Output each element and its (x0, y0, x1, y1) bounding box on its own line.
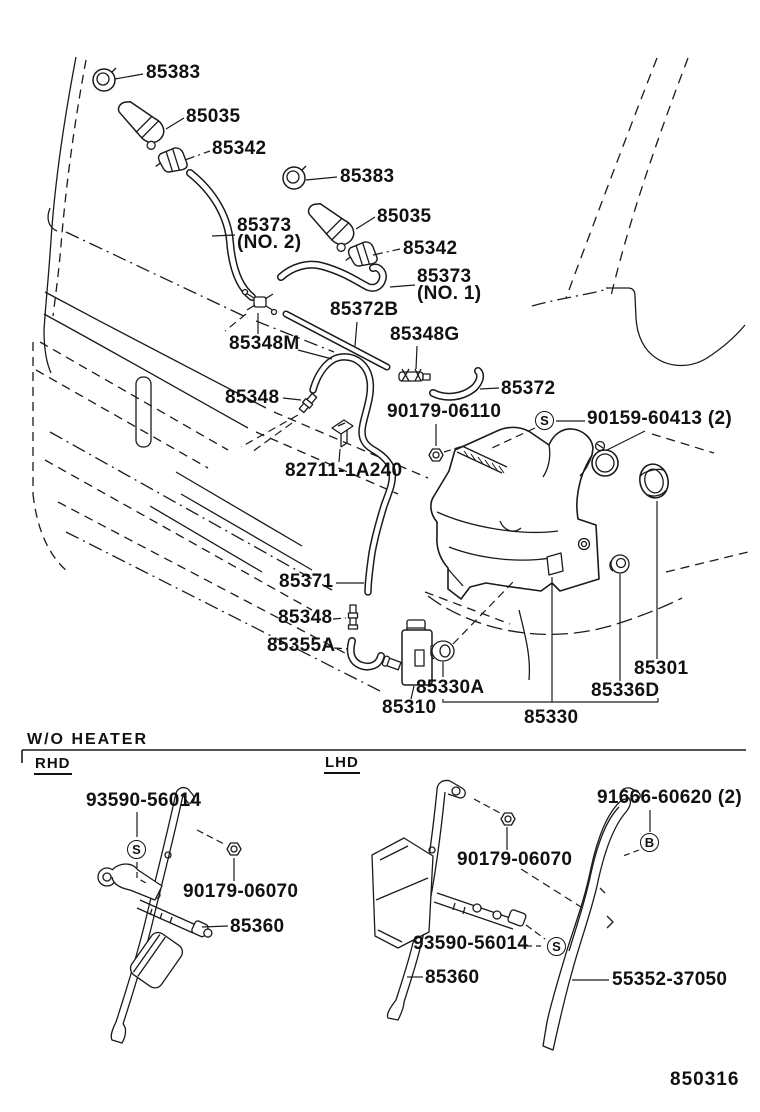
part-label-85372: 85372 (501, 380, 555, 397)
grommet-drawing-2 (283, 166, 306, 189)
part-label-82711-1a240: 82711-1A240 (285, 462, 402, 479)
part-label-85336d: 85336D (591, 682, 659, 699)
screw-marker-s-main: S (535, 411, 554, 430)
part-label-85348-2: 85348 (278, 609, 332, 626)
section-divider (22, 750, 746, 763)
part-label-85348g: 85348G (390, 326, 459, 343)
part-label-91666-60620: 91666-60620 (2) (597, 789, 742, 806)
part-label-85373-no2: 85373 (NO. 2) (237, 217, 301, 251)
part-label-90179-lhd: 90179-06070 (457, 851, 572, 868)
section-header-wo-heater: W/O HEATER (27, 731, 148, 749)
elbow-85355a-drawing (351, 641, 381, 667)
screw-marker-s-rhd: S (127, 840, 146, 859)
hose-clamp-drawing-1 (152, 146, 188, 176)
washer-hose-no1-drawing (281, 265, 383, 288)
part-label-85330: 85330 (524, 709, 578, 726)
variant-label-rhd: RHD (34, 755, 72, 775)
washer-tank-drawing (431, 427, 618, 599)
part-label-85310: 85310 (382, 699, 436, 716)
part-label-85355a: 85355A (267, 637, 335, 654)
clip-82711-drawing (332, 420, 353, 447)
screw-marker-s-lhd: S (547, 937, 566, 956)
figure-number: 850316 (670, 1069, 739, 1091)
variant-label-lhd: LHD (324, 754, 360, 774)
part-label-90179-rhd: 90179-06070 (183, 883, 298, 900)
part-label-85372b: 85372B (330, 301, 398, 318)
bolt-marker-b-lhd: B (640, 833, 659, 852)
part-label-85035-1: 85035 (186, 108, 240, 125)
joint-85348m-drawing (243, 290, 277, 315)
part-number-suffix: (NO. 1) (417, 285, 481, 302)
part-label-90179-06110: 90179-06110 (387, 403, 501, 420)
nut-rhd-drawing (227, 843, 241, 855)
grommet-85336d-drawing (610, 555, 629, 573)
joint-85348-lower-drawing (349, 605, 358, 629)
part-label-85348m: 85348M (229, 335, 299, 352)
part-label-85301: 85301 (634, 660, 688, 677)
part-label-85383-1: 85383 (146, 64, 200, 81)
washer-nozzle-drawing-2 (300, 197, 359, 253)
parts-catalog-page: 85383 85035 85342 85383 85035 85342 8537… (0, 0, 760, 1112)
part-number-suffix: (NO. 2) (237, 234, 301, 251)
part-label-85373-no1: 85373 (NO. 1) (417, 268, 481, 302)
nut-90179-06110-drawing (429, 449, 443, 461)
part-label-93590-lhd: 93590-56014 (413, 935, 528, 952)
rhd-bracket-drawing (98, 788, 214, 1043)
part-label-85035-2: 85035 (377, 208, 431, 225)
windshield-stay-drawing (543, 788, 640, 1050)
part-label-55352-37050: 55352-37050 (612, 971, 727, 988)
part-label-85330a: 85330A (416, 679, 484, 696)
part-label-85360-lhd: 85360 (425, 969, 479, 986)
grommet-drawing-1 (93, 68, 116, 91)
part-label-85348-1: 85348 (225, 389, 279, 406)
part-label-90159-60413: 90159-60413 (2) (587, 410, 732, 427)
part-label-85371: 85371 (279, 573, 333, 590)
washer-hose-85372-drawing (433, 371, 480, 397)
part-label-93590-rhd: 93590-56014 (86, 792, 201, 809)
part-label-85342-2: 85342 (403, 240, 457, 257)
part-label-85342-1: 85342 (212, 140, 266, 157)
nut-lhd-drawing (501, 813, 515, 825)
part-label-85360-rhd: 85360 (230, 918, 284, 935)
joint-85348-upper-drawing (298, 392, 318, 413)
joint-85348g-drawing (399, 369, 430, 381)
part-label-85383-2: 85383 (340, 168, 394, 185)
filler-cap-drawing (636, 461, 671, 501)
grommet-85330a-drawing (431, 641, 454, 661)
washer-nozzle-drawing-1 (110, 95, 169, 151)
